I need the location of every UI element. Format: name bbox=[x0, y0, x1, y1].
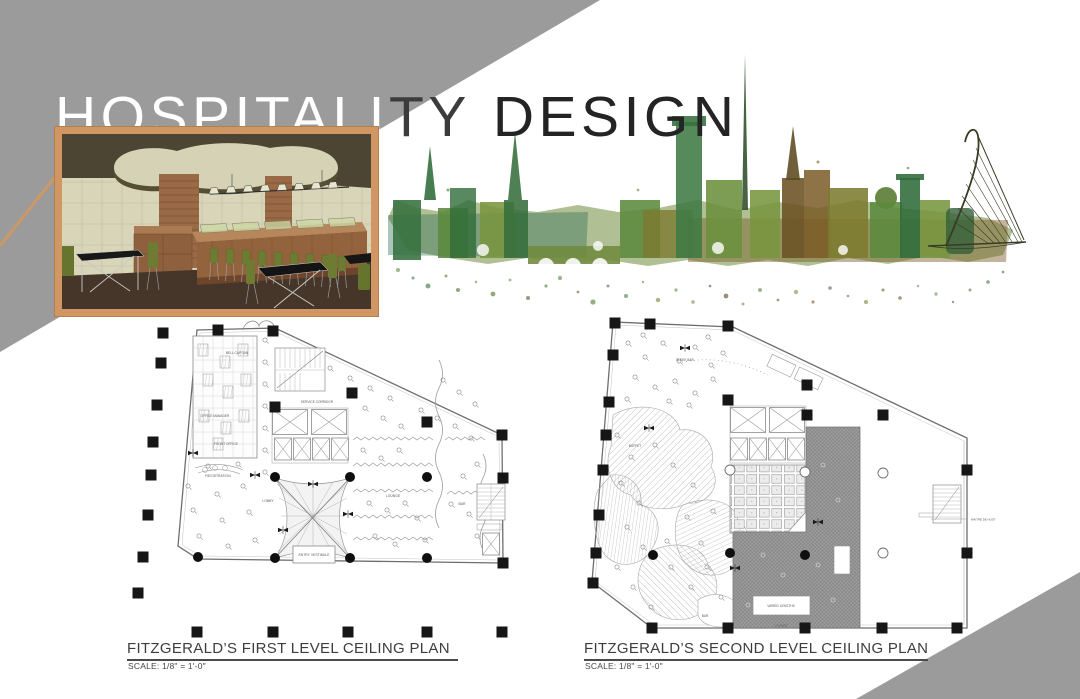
plan1-label-service-corridor: SERVICE CORRIDOR bbox=[301, 400, 334, 404]
second-plan-scale: SCALE: 1/8" = 1'-0" bbox=[585, 661, 663, 671]
plan1-stairs bbox=[275, 348, 325, 391]
title-part-rest: DESIGN bbox=[493, 85, 739, 149]
interior-render-photo bbox=[55, 127, 378, 316]
plan2-label-bar: BAR bbox=[702, 614, 709, 618]
plan2-label-sleek-bar: SLEEK BAR bbox=[676, 358, 694, 362]
plan2-label-varied-lengths: VARIED LENGTHS bbox=[767, 604, 795, 608]
plan2-label-lounge: LOUNGE bbox=[775, 624, 788, 628]
plan2-elevators bbox=[730, 406, 806, 463]
plan1-label-bell-captain: BELL CAPTAIN bbox=[226, 351, 249, 355]
plan1-label-lobby: LOBBY bbox=[262, 499, 274, 503]
plan1-label-registration: REGISTRATION bbox=[205, 474, 231, 478]
first-plan-scale: SCALE: 1/8" = 1'-0" bbox=[128, 661, 206, 671]
first-level-plan-drawing: BELL CAPTAIN OFFICE MANAGER FRONT OFFICE… bbox=[125, 318, 517, 644]
plan1-label-entry-vestibule: ENTRY VESTIBULE bbox=[299, 553, 331, 557]
plan2-label-maitre-de-host: MAITRE DE HOST bbox=[971, 518, 996, 522]
first-plan-title: FITZGERALD’S FIRST LEVEL CEILING PLAN bbox=[127, 640, 458, 661]
plan1-label-office-manager: OFFICE MANAGER bbox=[201, 414, 230, 418]
plan1-label-bar: BAR bbox=[459, 502, 467, 506]
interior-render-image bbox=[62, 134, 371, 309]
second-level-plan-drawing: SLEEK BAR BUFFET MAITRE DE HOST VARIED L… bbox=[583, 315, 1003, 645]
second-plan-title: FITZGERALD’S SECOND LEVEL CEILING PLAN bbox=[584, 640, 928, 661]
cloud-ceiling bbox=[114, 143, 338, 189]
plan2-label-buffet: BUFFET bbox=[629, 444, 641, 448]
title-part-mid: TY bbox=[389, 85, 471, 149]
plan1-label-front-office: FRONT OFFICE bbox=[214, 442, 238, 446]
portfolio-page: HOSPITALITYDESIGN bbox=[0, 0, 1080, 699]
plan2-waffle-ceiling bbox=[730, 465, 805, 533]
back-counter bbox=[134, 226, 192, 274]
plan1-label-lounge: LOUNGE bbox=[386, 494, 401, 498]
